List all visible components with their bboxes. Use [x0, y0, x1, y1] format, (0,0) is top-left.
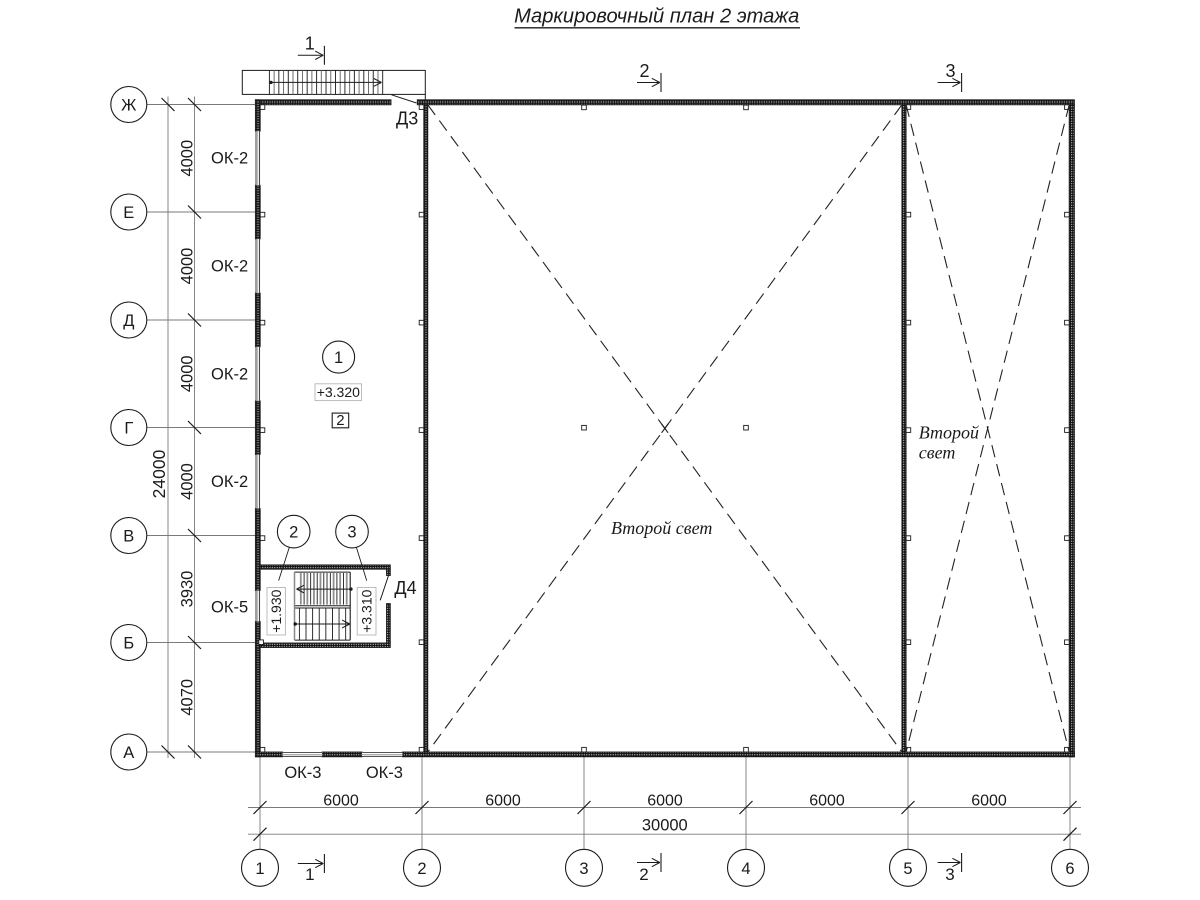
- svg-text:свет: свет: [919, 443, 956, 463]
- svg-text:ОК-2: ОК-2: [211, 150, 248, 168]
- svg-text:Д: Д: [123, 312, 134, 330]
- svg-text:3: 3: [945, 865, 954, 884]
- svg-text:2: 2: [336, 412, 344, 429]
- svg-text:ОК-3: ОК-3: [366, 764, 403, 782]
- svg-text:2: 2: [289, 524, 298, 542]
- svg-text:1: 1: [255, 860, 264, 878]
- svg-text:1: 1: [305, 34, 315, 54]
- svg-text:3930: 3930: [179, 571, 197, 608]
- svg-text:Ж: Ж: [121, 97, 137, 115]
- svg-text:А: А: [123, 744, 134, 762]
- svg-text:30000: 30000: [642, 816, 688, 834]
- svg-text:+3.320: +3.320: [317, 384, 360, 400]
- svg-text:ОК-2: ОК-2: [211, 473, 248, 491]
- svg-text:6: 6: [1065, 860, 1074, 878]
- svg-text:2: 2: [417, 860, 426, 878]
- svg-text:Второй: Второй: [919, 422, 979, 442]
- svg-text:1: 1: [305, 865, 314, 884]
- svg-text:4000: 4000: [179, 355, 197, 392]
- svg-text:4070: 4070: [179, 679, 197, 716]
- svg-text:5: 5: [903, 860, 912, 878]
- svg-text:Д4: Д4: [394, 578, 416, 598]
- svg-text:Маркировочный план 2 этажа: Маркировочный план 2 этажа: [514, 5, 799, 27]
- svg-text:6000: 6000: [323, 792, 359, 809]
- svg-text:6000: 6000: [485, 792, 521, 809]
- svg-text:+3.310: +3.310: [358, 589, 374, 632]
- svg-text:2: 2: [639, 61, 649, 81]
- svg-text:Второй свет: Второй свет: [611, 518, 712, 538]
- svg-text:Г: Г: [124, 420, 133, 438]
- svg-text:4: 4: [741, 860, 750, 878]
- svg-text:В: В: [123, 528, 134, 546]
- svg-text:ОК-2: ОК-2: [211, 258, 248, 276]
- svg-text:ОК-3: ОК-3: [284, 764, 321, 782]
- svg-text:6000: 6000: [809, 792, 845, 809]
- svg-text:Д3: Д3: [396, 109, 418, 129]
- svg-text:2: 2: [639, 865, 648, 884]
- svg-text:4000: 4000: [179, 140, 197, 177]
- svg-text:3: 3: [579, 860, 588, 878]
- svg-text:24000: 24000: [149, 449, 169, 498]
- svg-text:Е: Е: [123, 204, 134, 222]
- svg-text:Б: Б: [123, 635, 134, 653]
- svg-text:+1.930: +1.930: [268, 589, 284, 632]
- svg-text:ОК-5: ОК-5: [211, 599, 248, 617]
- svg-text:6000: 6000: [971, 792, 1007, 809]
- svg-text:6000: 6000: [647, 792, 683, 809]
- svg-text:4000: 4000: [179, 463, 197, 500]
- svg-text:ОК-2: ОК-2: [211, 365, 248, 383]
- svg-text:3: 3: [347, 524, 356, 542]
- svg-text:4000: 4000: [179, 248, 197, 285]
- svg-text:1: 1: [334, 349, 343, 367]
- svg-text:3: 3: [945, 61, 955, 81]
